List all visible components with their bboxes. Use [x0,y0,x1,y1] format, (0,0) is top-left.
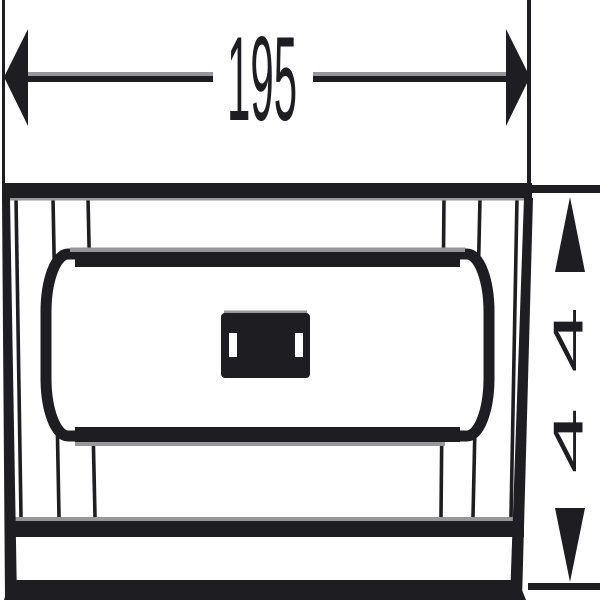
mount-block [221,313,310,378]
dish-edge-bottom [75,427,460,442]
mount-block-slot-left [229,333,237,357]
width-arrow-right-icon [506,29,530,126]
dish-gray-top [70,248,465,253]
height-arrow-up-icon [555,197,585,272]
width-dim-line-left [28,76,213,82]
width-dim-line-right [313,76,506,82]
body-front-rail [8,521,524,537]
body-left-wall [2,198,17,600]
height-arrow-down-icon [555,508,585,582]
rail-gray-top [8,517,524,521]
mount-block-slot-right [295,333,303,357]
width-arrow-left-icon [4,29,28,126]
width-extension-line-right [527,0,531,185]
dimline-gray-left [28,72,213,76]
width-dimension-label: 195 [227,19,297,139]
height-dimension-label: 44 [547,291,589,491]
dish-gray-bottom [75,442,445,446]
height-extension-tick-top [532,185,600,193]
dish-edge-top [75,252,460,267]
width-extension-line-left [2,0,5,184]
topbar-gray-under [2,198,532,201]
rod-left-outer [16,198,21,517]
technical-drawing: 195 44 [0,0,600,600]
height-extension-tick-bottom [528,583,600,590]
body-top-bar [2,183,532,198]
drawing-linework [0,0,600,600]
dimline-gray-right [313,72,506,76]
body-bottom-bar [4,580,526,600]
